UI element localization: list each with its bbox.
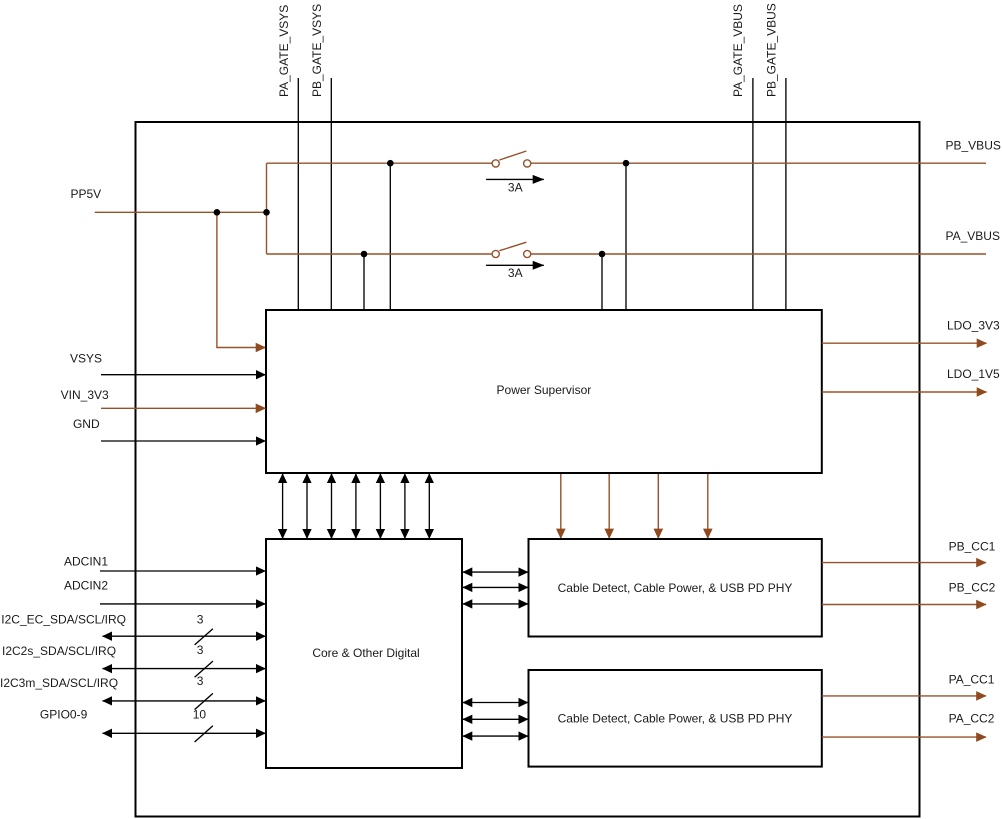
- svg-text:VSYS: VSYS: [70, 352, 102, 366]
- svg-text:3: 3: [197, 674, 204, 688]
- svg-text:PB_CC2: PB_CC2: [949, 580, 996, 594]
- svg-text:GND: GND: [73, 417, 100, 431]
- svg-text:PB_VBUS: PB_VBUS: [946, 138, 1001, 152]
- svg-text:3A: 3A: [508, 266, 523, 280]
- svg-text:PB_CC1: PB_CC1: [949, 540, 996, 554]
- svg-text:Cable Detect, Cable Power, & U: Cable Detect, Cable Power, & USB PD PHY: [558, 581, 793, 595]
- svg-text:LDO_1V5: LDO_1V5: [947, 367, 1000, 381]
- svg-text:Power Supervisor: Power Supervisor: [497, 383, 592, 397]
- svg-text:ADCIN1: ADCIN1: [64, 554, 108, 568]
- svg-text:3A: 3A: [508, 180, 523, 194]
- svg-text:PA_CC1: PA_CC1: [949, 672, 995, 686]
- svg-text:PA_CC2: PA_CC2: [949, 712, 995, 726]
- svg-text:PB_GATE_VSYS: PB_GATE_VSYS: [310, 4, 324, 97]
- svg-text:VIN_3V3: VIN_3V3: [61, 388, 109, 402]
- svg-text:Core & Other Digital: Core & Other Digital: [312, 646, 419, 660]
- svg-text:PP5V: PP5V: [71, 187, 102, 201]
- svg-text:PA_GATE_VBUS: PA_GATE_VBUS: [731, 4, 745, 97]
- svg-text:ADCIN2: ADCIN2: [64, 579, 108, 593]
- svg-text:LDO_3V3: LDO_3V3: [947, 319, 1000, 333]
- svg-text:I2C3m_SDA/SCL/IRQ: I2C3m_SDA/SCL/IRQ: [0, 676, 118, 690]
- svg-text:Cable Detect, Cable Power, & U: Cable Detect, Cable Power, & USB PD PHY: [558, 712, 793, 726]
- svg-text:I2C_EC_SDA/SCL/IRQ: I2C_EC_SDA/SCL/IRQ: [1, 612, 126, 626]
- svg-text:GPIO0-9: GPIO0-9: [40, 708, 88, 722]
- svg-text:PA_VBUS: PA_VBUS: [946, 229, 1000, 243]
- svg-text:I2C2s_SDA/SCL/IRQ: I2C2s_SDA/SCL/IRQ: [2, 644, 116, 658]
- svg-text:PA_GATE_VSYS: PA_GATE_VSYS: [277, 5, 291, 97]
- svg-text:3: 3: [197, 643, 204, 657]
- svg-text:10: 10: [193, 708, 207, 722]
- svg-text:3: 3: [197, 612, 204, 626]
- svg-text:PB_GATE_VBUS: PB_GATE_VBUS: [765, 3, 779, 97]
